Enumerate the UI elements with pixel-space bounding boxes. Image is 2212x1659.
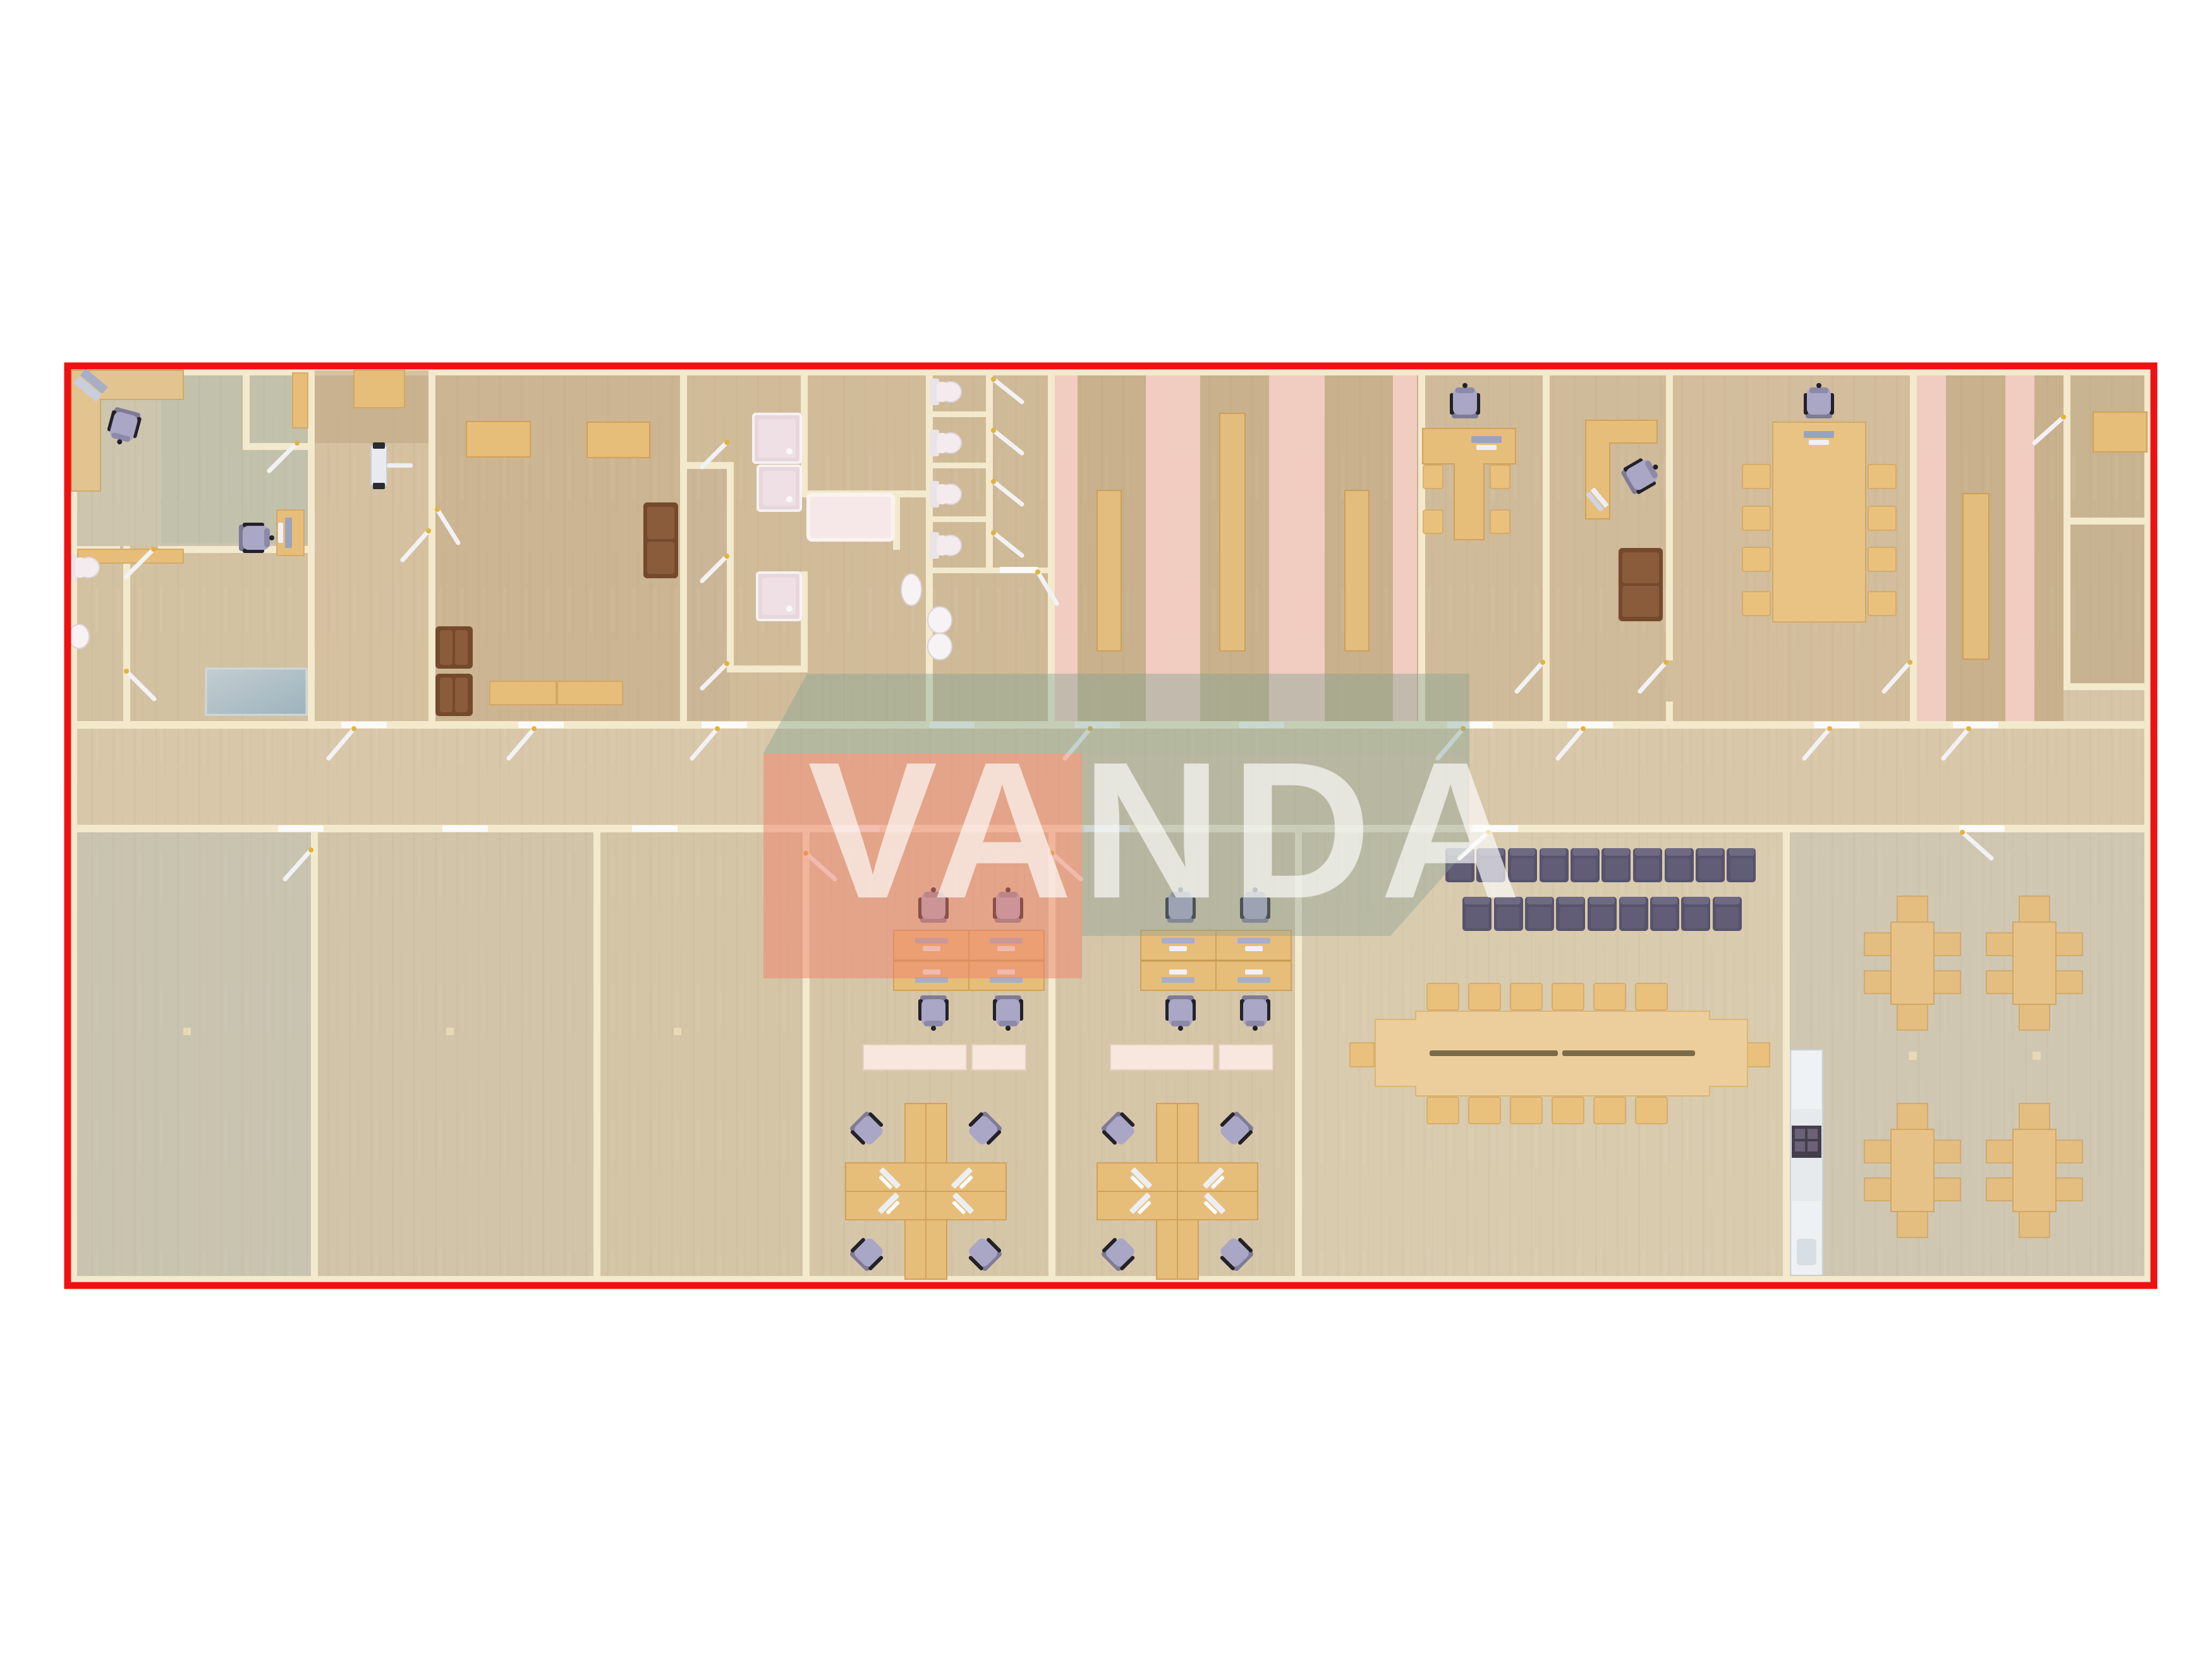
svg-text:VANDA: VANDA xyxy=(808,722,1529,939)
